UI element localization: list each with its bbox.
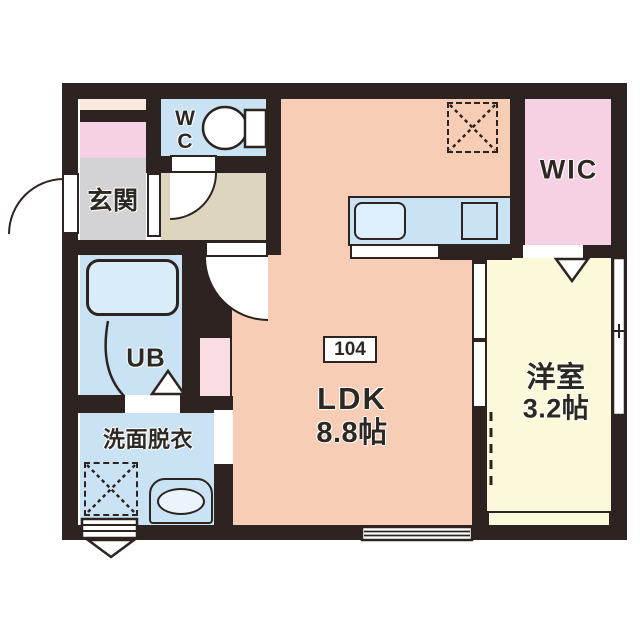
- wall-entry-shelf: [80, 110, 146, 122]
- stove: [461, 202, 498, 240]
- wall-top: [62, 83, 627, 99]
- wic-door-opening: [523, 245, 583, 258]
- entry-door-swing: [8, 178, 64, 234]
- sliding-door-panel-1: [472, 262, 487, 340]
- bathtub: [86, 259, 179, 316]
- ub-door-opening: [125, 395, 180, 413]
- wall-left: [62, 83, 78, 540]
- genkan-step: [147, 173, 161, 237]
- pipe-space: [200, 338, 230, 396]
- vent-door-marker: [88, 540, 134, 557]
- label-ldk-size: 8.8帖: [316, 409, 387, 451]
- wall-hall-ldk: [266, 98, 281, 255]
- ldk-door-leaf: [205, 241, 268, 257]
- wall-bottom: [62, 525, 627, 540]
- sliding-door-panel-2: [472, 340, 487, 408]
- kitchen-sink: [354, 202, 406, 240]
- label-senmen: 洗面脱衣: [103, 422, 193, 454]
- label-genkan: 玄関: [87, 181, 138, 217]
- wc-door-leaf: [170, 155, 217, 173]
- label-ub: UB: [126, 343, 166, 374]
- yoshitsu-window-ledge: [487, 511, 611, 527]
- wall-right: [611, 83, 627, 540]
- unit-number-plate: 104: [323, 336, 377, 363]
- label-yoshitsu-size: 3.2帖: [523, 387, 590, 426]
- wall-genkan-wc: [146, 98, 161, 156]
- washing-machine-space: [84, 462, 138, 516]
- counter-front: [350, 244, 440, 259]
- unit-number: 104: [334, 339, 366, 361]
- entry-closet: [80, 122, 146, 158]
- label-wic: WIC: [540, 155, 598, 186]
- washbasin-bowl: [157, 488, 205, 515]
- entry-door-leaf: [62, 173, 79, 234]
- senmen-door-opening: [214, 410, 233, 464]
- entry-upper-cabinet: [80, 99, 146, 110]
- floor-plan: 玄関 WC UB 洗面脱衣 LDK 8.8帖 洋室 3.2帖 WIC 104: [0, 0, 640, 640]
- label-wc: WC: [175, 107, 196, 153]
- wall-ldk-wic: [510, 98, 525, 245]
- refrigerator-space: [447, 102, 498, 153]
